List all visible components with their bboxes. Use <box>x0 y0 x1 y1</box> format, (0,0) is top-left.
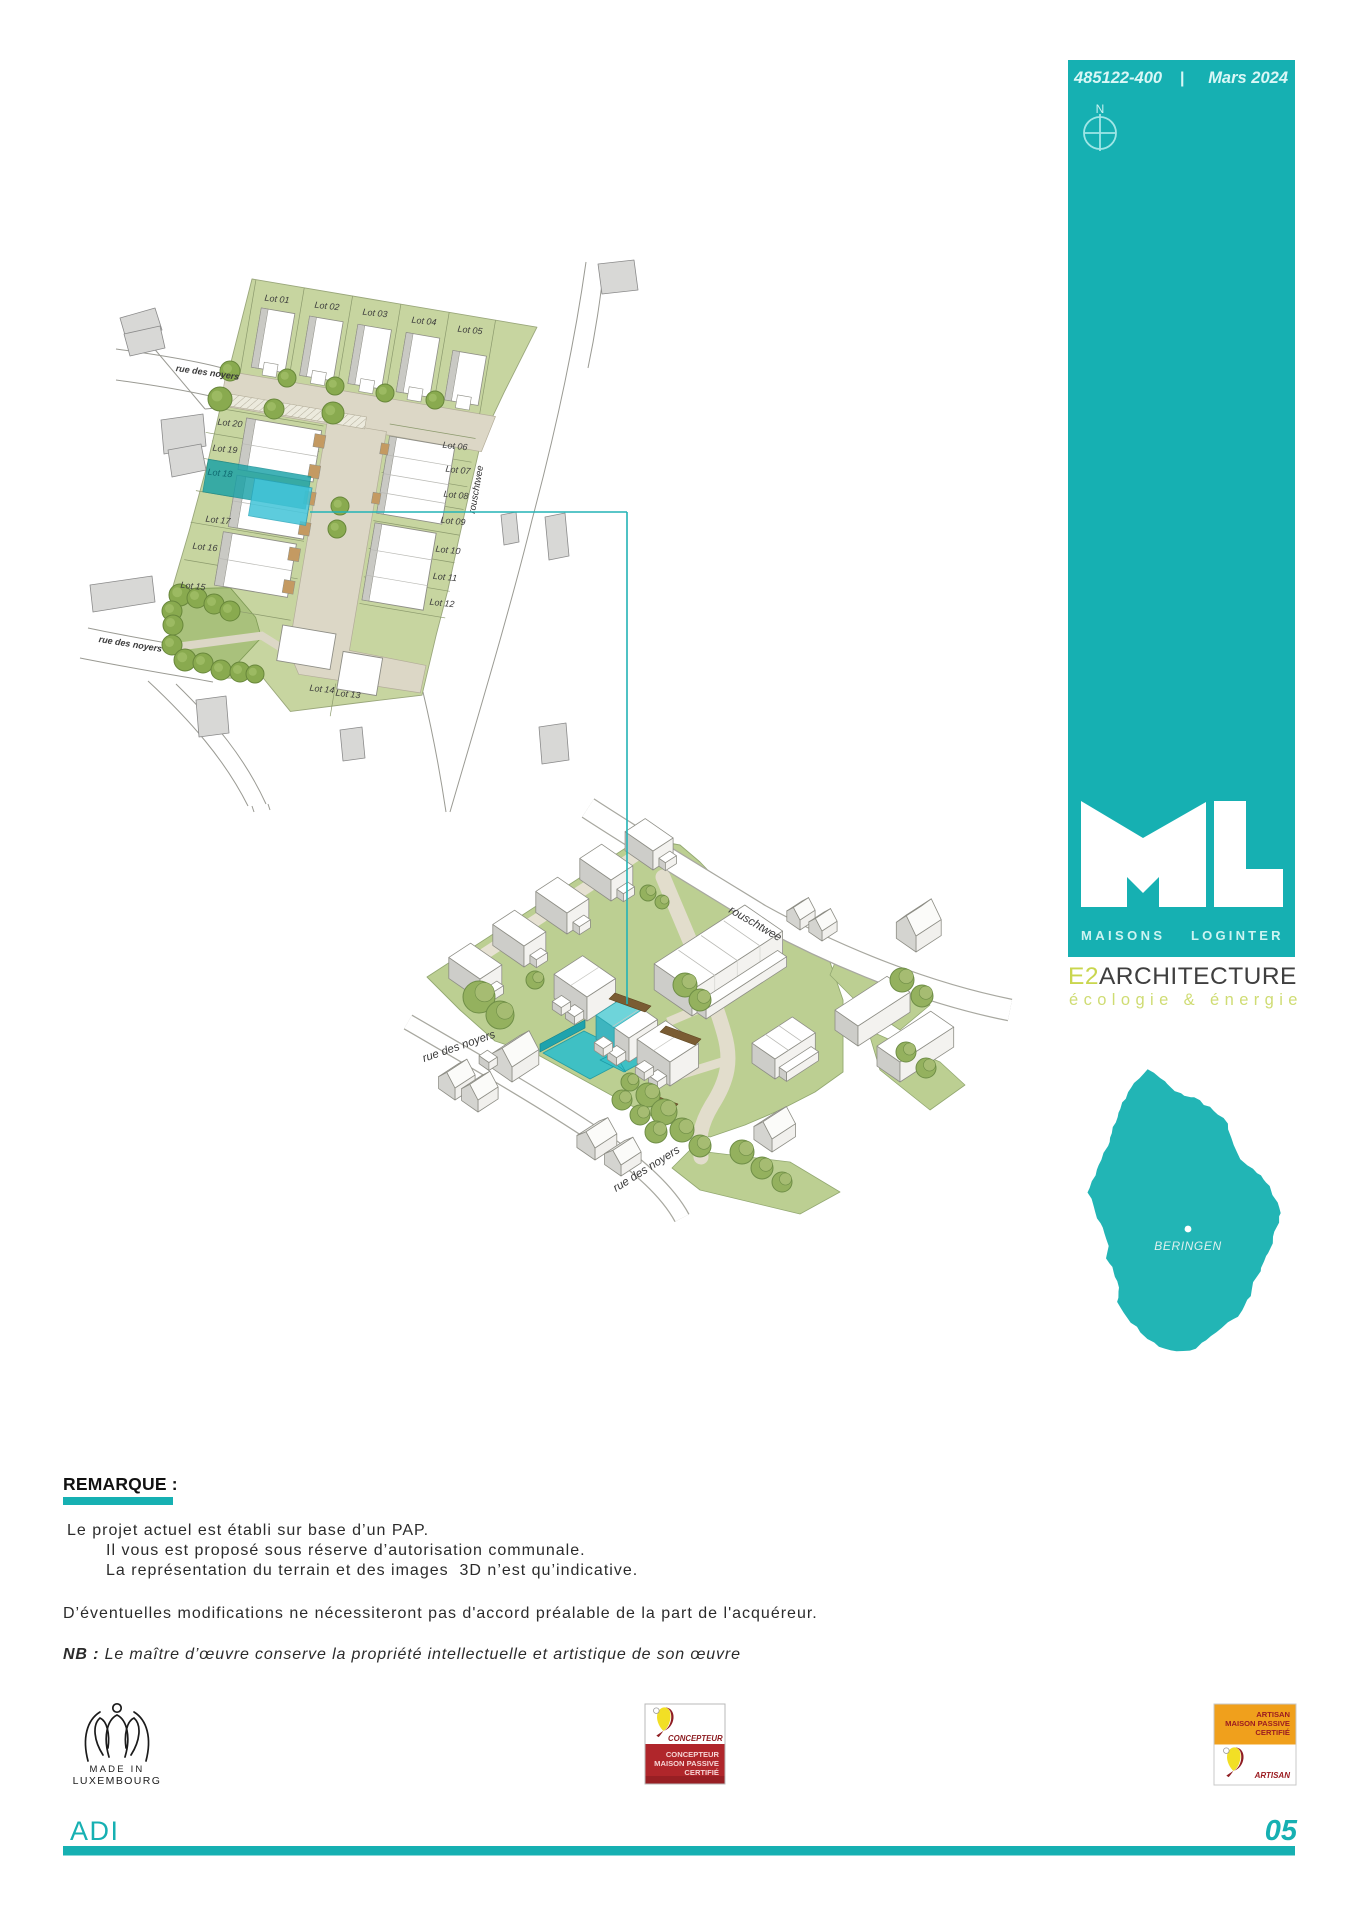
svg-text:LUXEMBOURG: LUXEMBOURG <box>73 1775 162 1787</box>
svg-text:CERTIFIÉ: CERTIFIÉ <box>1255 1728 1290 1737</box>
svg-text:N: N <box>1096 102 1105 116</box>
svg-text:CONCEPTEUR: CONCEPTEUR <box>666 1750 720 1759</box>
svg-text:ADI: ADI <box>70 1816 120 1846</box>
svg-text:écologie & énergie: écologie & énergie <box>1069 991 1303 1009</box>
svg-text:rue des noyers: rue des noyers <box>98 634 163 654</box>
svg-text:ARTISAN: ARTISAN <box>1254 1771 1291 1780</box>
svg-text:MADE IN: MADE IN <box>90 1764 145 1775</box>
svg-text:BERINGEN: BERINGEN <box>1154 1239 1221 1253</box>
svg-text:ARTISAN: ARTISAN <box>1256 1710 1290 1719</box>
svg-text:CERTIFIÉ: CERTIFIÉ <box>684 1768 719 1777</box>
svg-text:|: | <box>1180 70 1184 87</box>
svg-text:MAISONS: MAISONS <box>1081 928 1165 943</box>
svg-text:E2ARCHITECTURE: E2ARCHITECTURE <box>1068 963 1297 990</box>
svg-text:485122-400: 485122-400 <box>1073 69 1163 87</box>
svg-text:CONCEPTEUR: CONCEPTEUR <box>668 1734 723 1743</box>
svg-text:MAISON PASSIVE: MAISON PASSIVE <box>1225 1719 1290 1728</box>
svg-text:MAISON PASSIVE: MAISON PASSIVE <box>654 1759 719 1768</box>
svg-text:Mars 2024: Mars 2024 <box>1208 69 1288 87</box>
svg-text:05: 05 <box>1265 1815 1298 1847</box>
svg-text:LOGINTER: LOGINTER <box>1191 928 1284 943</box>
